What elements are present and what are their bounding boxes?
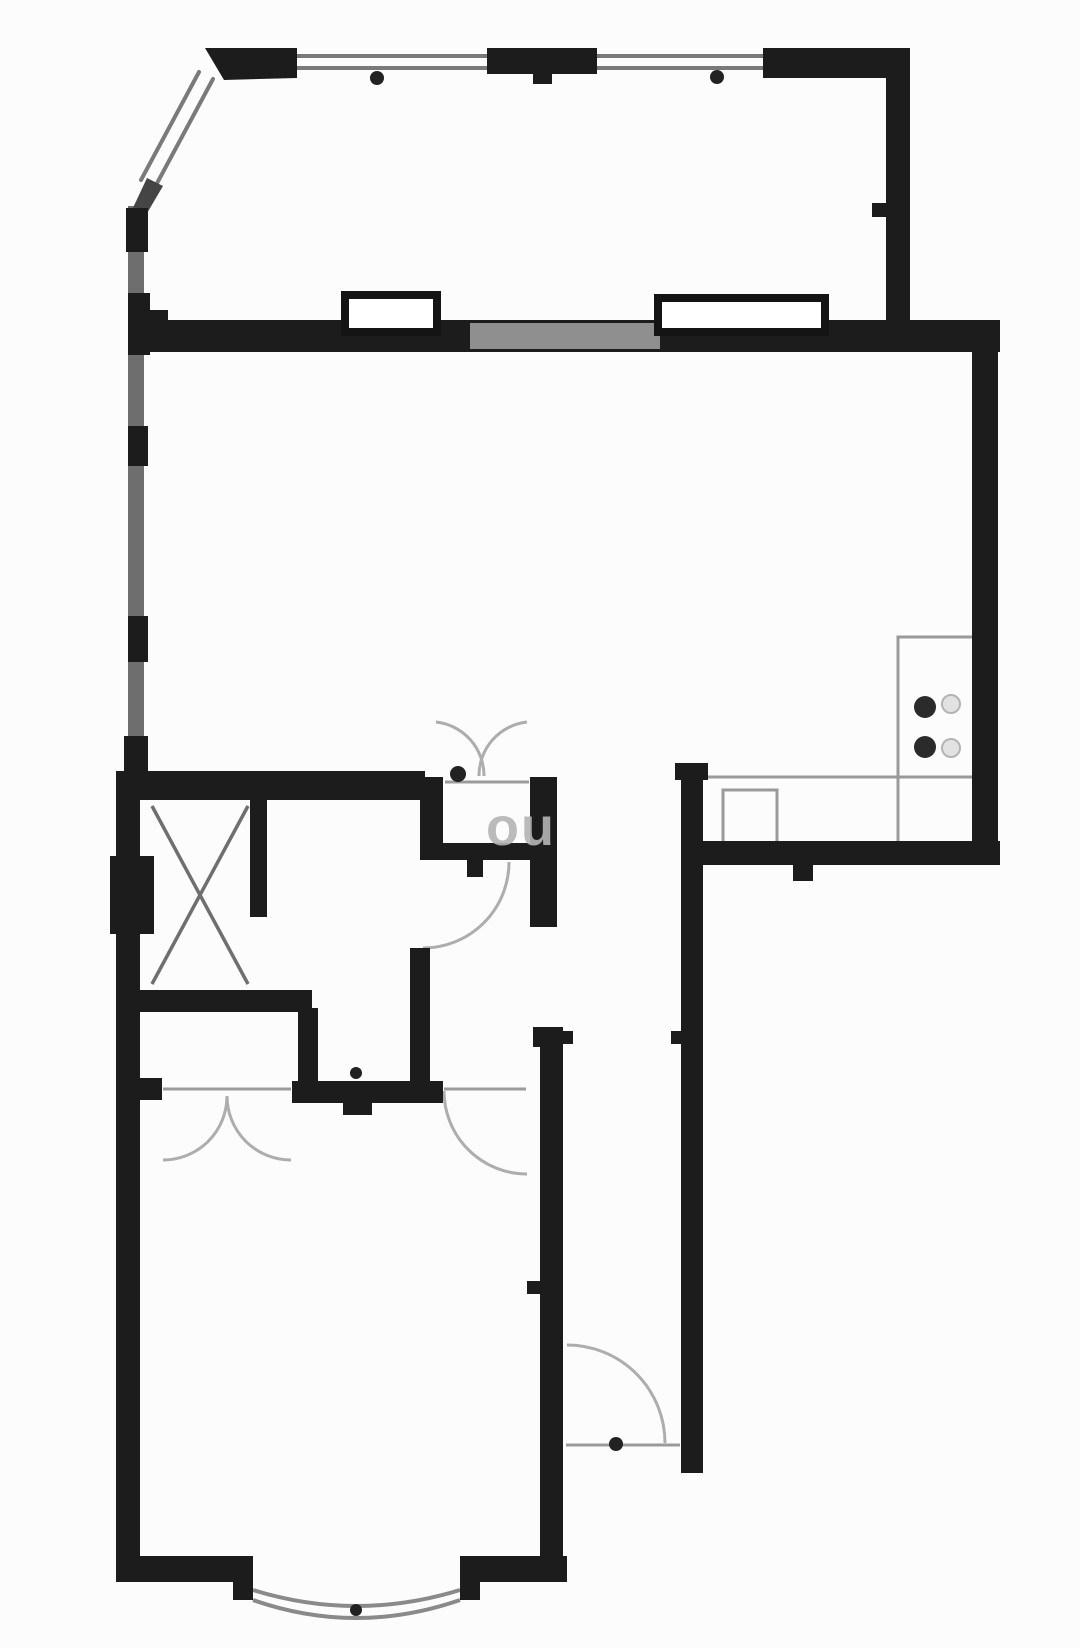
hinge-dot (350, 1604, 362, 1616)
hinge-dot (370, 71, 384, 85)
hob-burner (942, 739, 960, 757)
wall-segment (128, 616, 148, 662)
hob-burner (914, 696, 936, 718)
wall-segment (128, 426, 148, 466)
radiator (345, 295, 437, 332)
hob-burner (914, 736, 936, 758)
wall-segment (540, 1045, 563, 1582)
wall-segment (467, 860, 483, 877)
wall-segment (116, 990, 312, 1012)
wall-segment (533, 1027, 563, 1047)
wall-segment (420, 843, 557, 860)
wall-segment (233, 1570, 253, 1600)
wall-segment (298, 1008, 318, 1090)
wall-segment (250, 798, 267, 917)
wall-segment (527, 1281, 541, 1294)
wall-segment (410, 948, 430, 1090)
hinge-dot (609, 1437, 623, 1451)
wall-segment (128, 293, 150, 355)
wall-segment (793, 865, 813, 881)
wall-segment (886, 48, 910, 340)
wall-segment (116, 771, 425, 800)
hinge-dot (350, 1067, 362, 1079)
wall-segment (872, 203, 886, 217)
wall-segment (116, 1556, 253, 1582)
wall-segment (681, 841, 1000, 865)
wall-segment (563, 1031, 573, 1044)
wall-tint (470, 323, 660, 349)
wall-segment (124, 736, 148, 776)
wall-segment (148, 310, 168, 352)
wall-segment (292, 1081, 443, 1103)
wall-segment (110, 856, 154, 934)
wall-segment (681, 763, 703, 1473)
floor-plan-svg (0, 0, 1080, 1648)
wall-segment (343, 1103, 372, 1115)
wall-segment (671, 1031, 681, 1044)
hinge-dot (450, 766, 466, 782)
wall-segment (126, 208, 148, 252)
wall-segment (128, 206, 144, 778)
hinge-dot (710, 70, 724, 84)
floor-plan-canvas: ou (0, 0, 1080, 1648)
wall-segment (972, 337, 998, 865)
radiator (658, 298, 825, 332)
hob-burner (942, 695, 960, 713)
wall-segment (533, 68, 552, 84)
wall-segment (460, 1570, 480, 1600)
